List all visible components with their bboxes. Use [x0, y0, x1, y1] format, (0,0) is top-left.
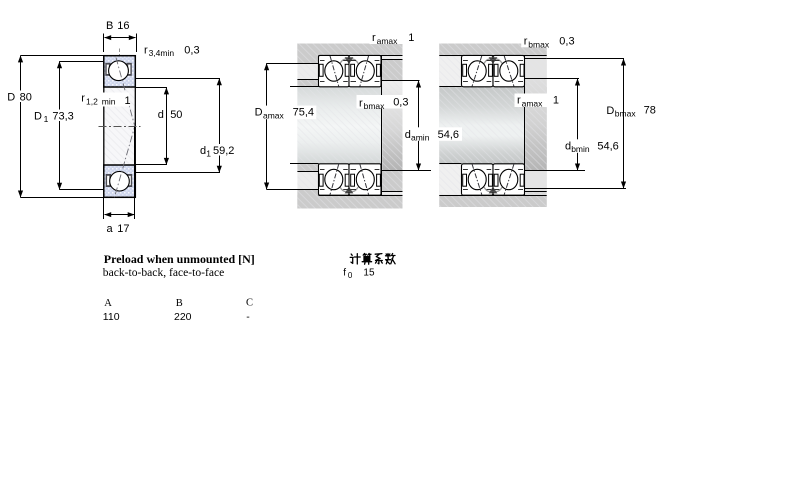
svg-text:80: 80: [20, 91, 32, 103]
svg-text:bmin: bmin: [571, 144, 590, 154]
svg-text:f: f: [343, 268, 346, 279]
svg-text:D: D: [34, 110, 42, 122]
svg-text:17: 17: [117, 223, 129, 235]
svg-text:78: 78: [644, 105, 656, 117]
svg-text:1,2: 1,2: [86, 97, 98, 107]
svg-text:r: r: [144, 45, 148, 57]
svg-text:r: r: [524, 36, 528, 48]
svg-text:-: -: [246, 311, 250, 323]
svg-text:D: D: [255, 107, 263, 119]
svg-text:75,4: 75,4: [293, 106, 314, 118]
svg-text:r: r: [359, 97, 363, 109]
svg-text:r: r: [517, 95, 521, 107]
svg-text:54,6: 54,6: [597, 141, 618, 153]
svg-text:1: 1: [125, 95, 131, 107]
svg-text:1: 1: [408, 32, 414, 44]
svg-text:1: 1: [44, 114, 49, 124]
svg-text:D: D: [606, 105, 614, 117]
svg-text:amax: amax: [263, 110, 285, 120]
svg-text:bmax: bmax: [528, 39, 550, 49]
svg-text:min: min: [102, 97, 116, 107]
svg-text:50: 50: [170, 109, 182, 121]
svg-text:0,3: 0,3: [559, 35, 574, 47]
svg-text:3,4min: 3,4min: [149, 48, 175, 58]
svg-text:B: B: [106, 20, 113, 32]
svg-text:54,6: 54,6: [438, 129, 459, 141]
svg-text:r: r: [81, 93, 85, 105]
svg-text:C: C: [246, 297, 253, 308]
svg-text:73,3: 73,3: [52, 110, 73, 122]
svg-text:59,2: 59,2: [213, 145, 234, 157]
svg-text:1: 1: [553, 95, 559, 107]
svg-text:A: A: [104, 298, 112, 309]
svg-text:16: 16: [117, 20, 129, 32]
svg-text:0: 0: [348, 271, 353, 280]
svg-text:0,3: 0,3: [393, 97, 408, 109]
svg-text:D: D: [7, 91, 15, 103]
svg-text:bmax: bmax: [615, 109, 637, 119]
svg-text:r: r: [372, 32, 376, 44]
svg-text:15: 15: [363, 268, 375, 279]
svg-text:d: d: [200, 145, 206, 157]
svg-text:d: d: [158, 109, 164, 121]
svg-text:d: d: [405, 129, 411, 141]
svg-text:B: B: [176, 298, 183, 309]
svg-text:220: 220: [174, 311, 192, 323]
svg-text:0,3: 0,3: [184, 45, 199, 57]
svg-text:amax: amax: [377, 36, 399, 46]
svg-text:bmax: bmax: [364, 101, 386, 111]
svg-text:1: 1: [206, 149, 211, 159]
svg-text:amax: amax: [522, 98, 544, 108]
svg-text:110: 110: [103, 311, 120, 323]
svg-text:a: a: [107, 223, 114, 235]
svg-text:amin: amin: [411, 133, 430, 143]
svg-text:back-to-back, face-to-face: back-to-back, face-to-face: [103, 265, 225, 279]
